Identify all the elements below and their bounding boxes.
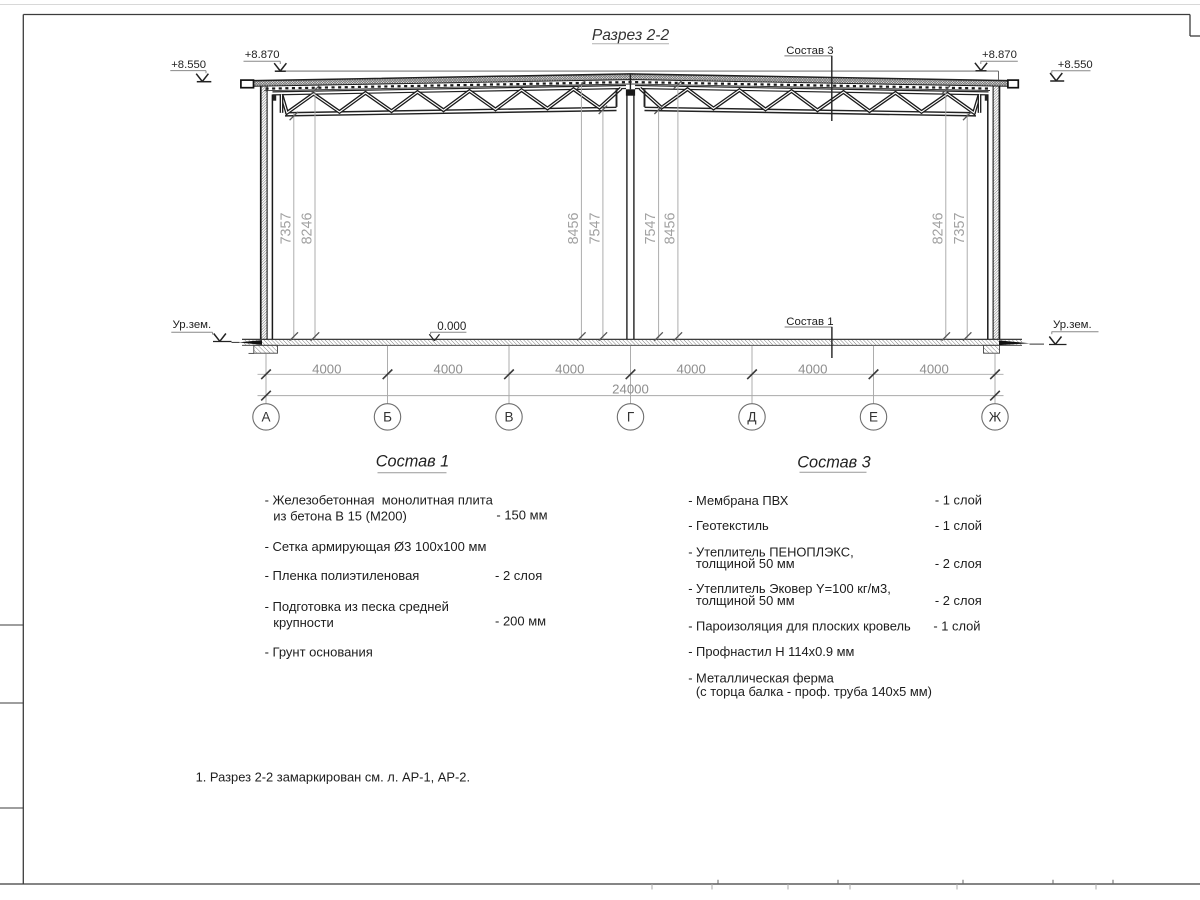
svg-text:толщиной 50 мм: толщиной 50 мм xyxy=(696,593,795,608)
svg-text:- Геотекстиль: - Геотекстиль xyxy=(688,518,769,533)
svg-text:4000: 4000 xyxy=(434,361,463,376)
svg-text:- 150 мм: - 150 мм xyxy=(496,508,547,523)
svg-text:+8.550: +8.550 xyxy=(171,59,206,71)
svg-text:8456: 8456 xyxy=(663,213,679,245)
svg-text:4000: 4000 xyxy=(677,361,706,376)
svg-text:- 2 слоя: - 2 слоя xyxy=(935,593,982,608)
svg-text:- Мембрана ПВХ: - Мембрана ПВХ xyxy=(688,493,789,508)
svg-text:8456: 8456 xyxy=(566,213,582,245)
svg-text:+8.870: +8.870 xyxy=(245,49,280,61)
svg-text:крупности: крупности xyxy=(273,615,333,630)
svg-text:А: А xyxy=(261,410,270,425)
svg-text:Ур.зем.: Ур.зем. xyxy=(173,319,212,331)
svg-text:24000: 24000 xyxy=(612,381,649,396)
svg-text:Состав 1: Состав 1 xyxy=(376,453,449,471)
svg-text:7547: 7547 xyxy=(643,213,659,245)
svg-text:- 200 мм: - 200 мм xyxy=(495,613,546,628)
svg-text:4000: 4000 xyxy=(555,361,584,376)
svg-text:- Пленка полиэтиленовая: - Пленка полиэтиленовая xyxy=(265,568,420,583)
svg-text:7357: 7357 xyxy=(952,213,968,245)
svg-text:Б: Б xyxy=(383,410,392,425)
svg-text:1. Разрез 2-2 замаркирован см.: 1. Разрез 2-2 замаркирован см. л. АР-1, … xyxy=(196,770,470,785)
svg-text:- 1 слой: - 1 слой xyxy=(935,518,982,533)
svg-text:Д: Д xyxy=(747,410,756,425)
svg-text:- Сетка армирующая Ø3 100х100: - Сетка армирующая Ø3 100х100 мм xyxy=(265,539,487,554)
svg-text:(с торца балка - проф. труба 1: (с торца балка - проф. труба 140х5 мм) xyxy=(696,684,932,699)
svg-text:7357: 7357 xyxy=(278,213,294,245)
svg-text:В: В xyxy=(504,410,513,425)
svg-text:+8.550: +8.550 xyxy=(1058,59,1093,71)
svg-text:Состав 3: Состав 3 xyxy=(797,454,870,472)
svg-text:из бетона В 15 (М200): из бетона В 15 (М200) xyxy=(273,508,407,523)
svg-text:4000: 4000 xyxy=(798,361,827,376)
svg-text:- Железобетонная монолитная п: - Железобетонная монолитная плита xyxy=(265,492,494,507)
svg-text:Ур.зем.: Ур.зем. xyxy=(1053,319,1092,331)
svg-text:- Металлическая ферма: - Металлическая ферма xyxy=(688,670,834,685)
svg-text:- 1 слой: - 1 слой xyxy=(933,619,980,634)
svg-text:Ж: Ж xyxy=(989,410,1002,425)
svg-text:Г: Г xyxy=(627,410,635,425)
svg-text:- 2 слоя: - 2 слоя xyxy=(495,568,542,583)
svg-text:- 2 слоя: - 2 слоя xyxy=(935,556,982,571)
svg-text:- 1 слой: - 1 слой xyxy=(935,493,982,508)
svg-text:0.000: 0.000 xyxy=(437,320,466,333)
svg-text:8246: 8246 xyxy=(300,213,316,245)
svg-text:- Пароизоляция для плоских кро: - Пароизоляция для плоских кровель xyxy=(688,619,911,634)
svg-text:- Грунт основания: - Грунт основания xyxy=(265,644,373,659)
svg-text:Состав 1: Состав 1 xyxy=(786,316,833,328)
svg-text:- Подготовка из песка средней: - Подготовка из песка средней xyxy=(265,599,449,614)
svg-text:4000: 4000 xyxy=(312,361,341,376)
svg-text:Разрез 2-2: Разрез 2-2 xyxy=(592,27,670,44)
svg-text:Е: Е xyxy=(869,410,878,425)
svg-text:8246: 8246 xyxy=(930,213,946,245)
svg-text:толщиной 50 мм: толщиной 50 мм xyxy=(696,556,795,571)
svg-text:- Профнастил Н 114х0.9 мм: - Профнастил Н 114х0.9 мм xyxy=(688,644,854,659)
svg-text:7547: 7547 xyxy=(588,213,604,245)
svg-text:Состав 3: Состав 3 xyxy=(786,45,833,57)
svg-text:+8.870: +8.870 xyxy=(982,49,1017,61)
svg-text:4000: 4000 xyxy=(920,361,949,376)
